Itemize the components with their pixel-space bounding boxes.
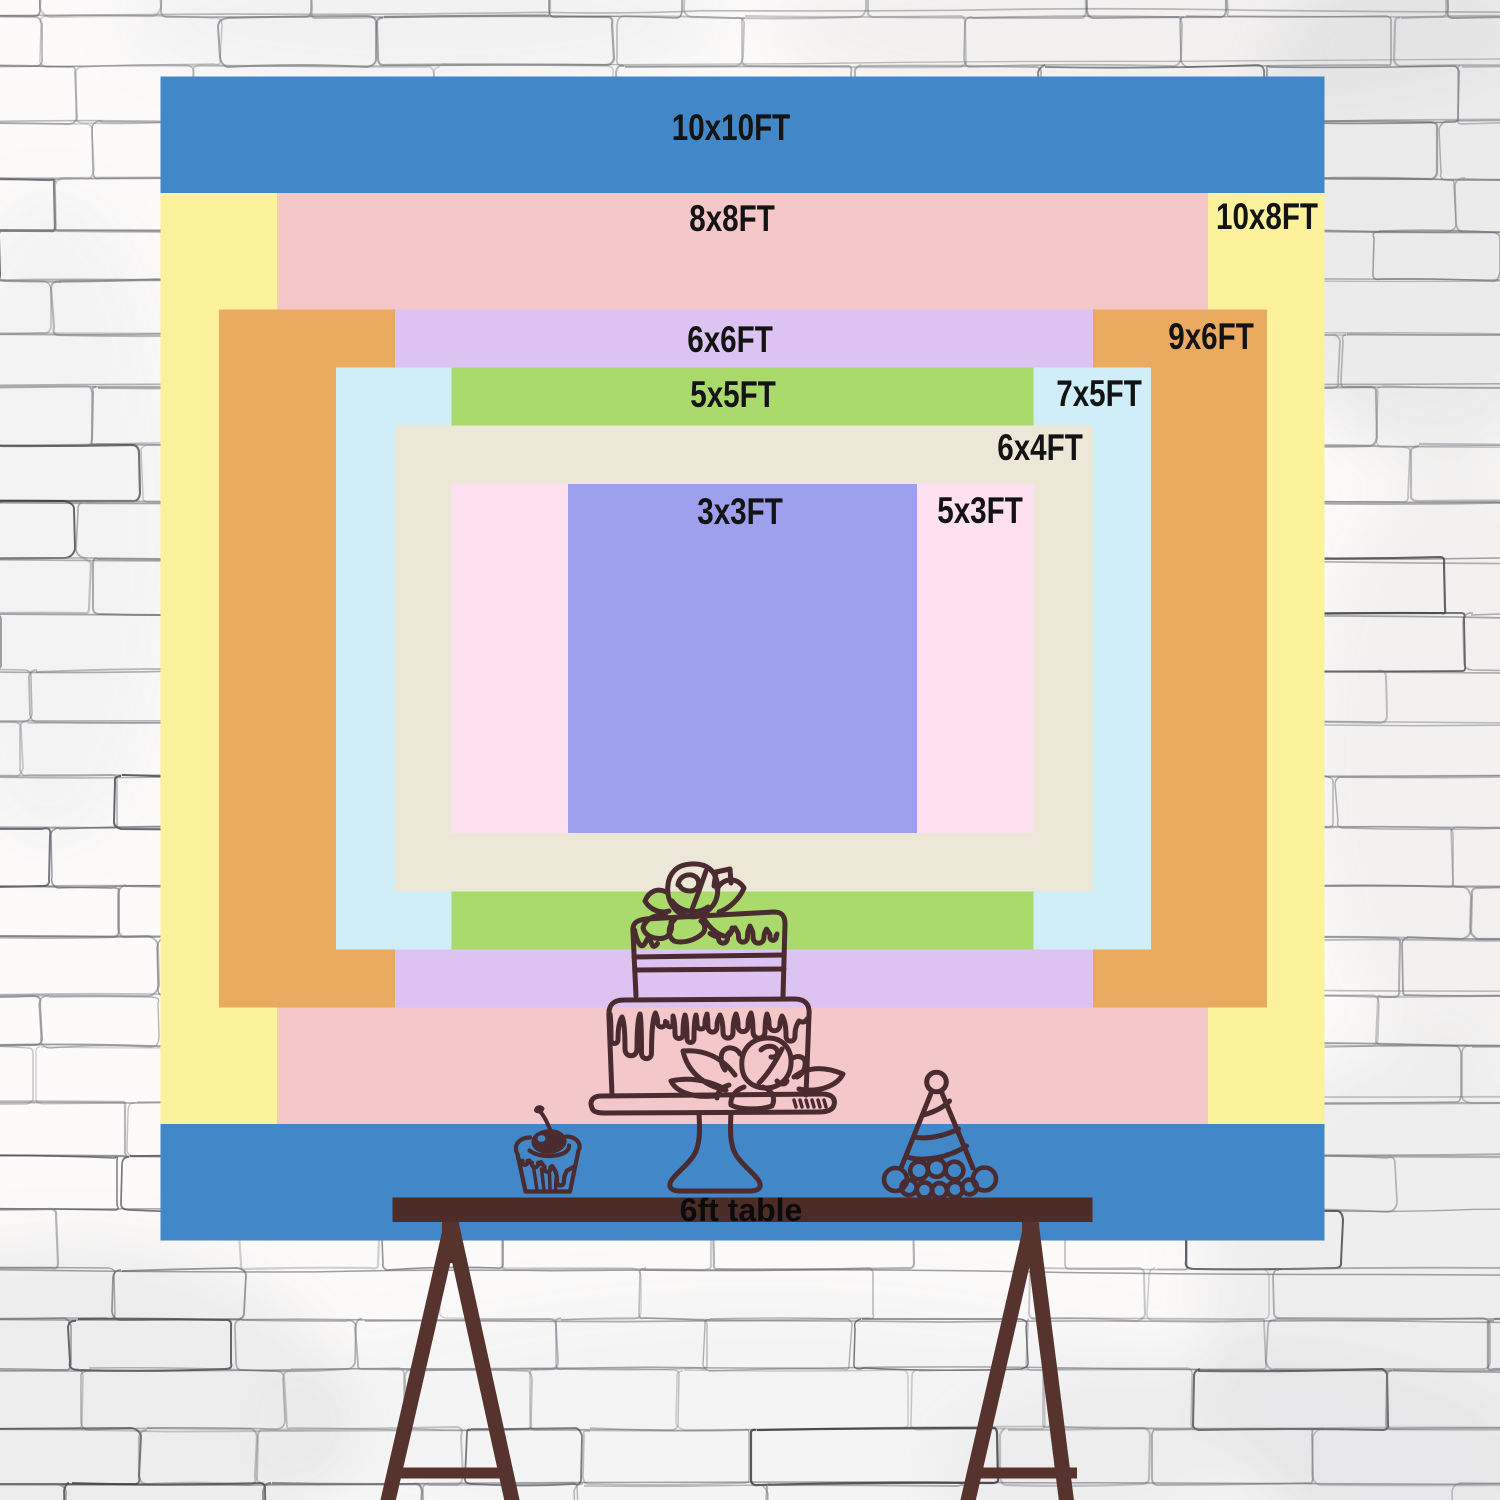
svg-text:6x6FT: 6x6FT xyxy=(687,320,773,361)
svg-text:8x8FT: 8x8FT xyxy=(689,199,775,240)
svg-text:5x5FT: 5x5FT xyxy=(690,375,776,416)
svg-text:5x3FT: 5x3FT xyxy=(937,491,1023,532)
svg-text:3x3FT: 3x3FT xyxy=(697,492,783,533)
svg-text:6ft table: 6ft table xyxy=(680,1192,803,1228)
svg-text:6x4FT: 6x4FT xyxy=(997,428,1083,469)
svg-text:9x6FT: 9x6FT xyxy=(1168,317,1254,358)
svg-text:7x5FT: 7x5FT xyxy=(1056,374,1142,415)
svg-text:10x10FT: 10x10FT xyxy=(672,108,791,149)
svg-text:10x8FT: 10x8FT xyxy=(1216,197,1318,238)
